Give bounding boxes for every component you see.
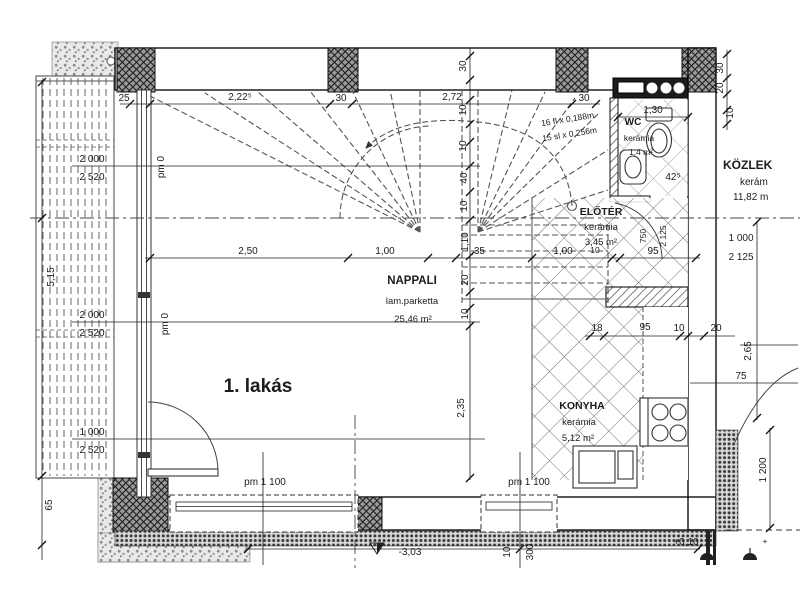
pier — [556, 48, 588, 92]
wcdoor-h: 2 125 — [658, 225, 668, 247]
dim-mid-0: 2,50 — [238, 246, 258, 257]
dim-mid-1: 1,00 — [375, 246, 395, 257]
drain-symbol — [107, 57, 115, 65]
left-facade — [137, 90, 151, 497]
pm1100-a: pm 1 100 — [244, 477, 286, 488]
pm0-a: pm 0 — [156, 155, 167, 178]
eloter-finish: kerámia — [584, 222, 619, 233]
dim-rt-1: 20 — [715, 82, 726, 94]
kozlek-area: 11,82 m — [733, 192, 768, 203]
stove — [640, 398, 688, 446]
dim-mid-4: 10 — [590, 245, 600, 255]
dim-sv-7: 10 — [460, 308, 471, 320]
wcdoor-w: 750 — [638, 229, 648, 243]
dim-rt-0: 30 — [715, 62, 726, 74]
apartment-label: 1. lakás — [224, 376, 293, 397]
pier — [356, 497, 382, 530]
dim-b-1: 300 — [525, 543, 536, 560]
dim-top-4: 30 — [578, 93, 590, 104]
dim-sv-8: 2,35 — [456, 398, 467, 418]
konyha-finish: kerámia — [562, 417, 597, 428]
dim-k-0: 18 — [591, 323, 603, 334]
right-opening-w: 1 000 — [728, 233, 753, 244]
kitchen-sink-unit — [573, 446, 637, 488]
win2-w: 2 000 — [79, 310, 104, 321]
dim-k-1: 95 — [639, 322, 651, 333]
pm1100-b: pm 1 100 — [508, 477, 550, 488]
pm0-b: pm 0 — [160, 312, 171, 335]
dim-ls-0: 5,15 — [46, 267, 57, 287]
dim-top-3: 2,72 — [442, 92, 462, 103]
nappali-finish: lam.parketta — [386, 296, 439, 307]
dim-sv-5: 1,10 — [460, 232, 471, 252]
dim-sv-3: 40 — [459, 172, 470, 184]
window-2 — [481, 495, 557, 532]
nappali-name: NAPPALI — [387, 275, 437, 287]
entry-level: +0,10 — [673, 537, 699, 548]
kitchen-counter — [606, 287, 688, 307]
door1-h: 2 520 — [79, 445, 104, 456]
dim-rs-2: 1 200 — [758, 457, 769, 482]
floorplan-drawing: + 25 2,22⁵ 30 2,72 30 1,30 30 20 10 16 f… — [0, 0, 800, 600]
dim-top-1: 2,22⁵ — [228, 92, 252, 103]
mullion — [138, 292, 150, 298]
dim-wc-corner: 42⁵ — [665, 172, 680, 183]
kozlek-name: KÖZLEK — [723, 157, 773, 172]
win1-h: 2 520 — [79, 172, 104, 183]
window-1 — [170, 495, 358, 532]
dim-mid-3: 1,00 — [553, 246, 573, 257]
konyha-name: KONYHA — [559, 400, 605, 412]
floorplan-canvas: + 25 2,22⁵ 30 2,72 30 1,30 30 20 10 16 f… — [0, 0, 800, 600]
insulation-band — [115, 531, 716, 546]
right-opening-h: 2 125 — [728, 252, 753, 263]
dim-top-0: 25 — [118, 93, 130, 104]
pier — [328, 48, 358, 92]
stair-note-2: 15 sl x 0,256m — [541, 125, 597, 144]
dim-sv-2: 10 — [458, 140, 469, 152]
win1-w: 2 000 — [79, 154, 104, 165]
right-wall — [688, 48, 716, 530]
insulation-band-right — [716, 430, 738, 531]
dim-sv-1: 10 — [458, 104, 469, 116]
wc-area: 1,4 m² — [629, 147, 653, 157]
dim-ls-1: 65 — [44, 499, 55, 511]
nappali-area: 25,46 m² — [394, 314, 432, 325]
dim-sv-4: 10 — [459, 200, 470, 212]
door1-w: 1 000 — [79, 427, 104, 438]
win2-h: 2 520 — [79, 328, 104, 339]
konyha-area: 5,12 m² — [562, 433, 594, 444]
dim-k-3: 20 — [710, 323, 722, 334]
dim-rs-1: 75 — [735, 371, 747, 382]
plus-mark: + — [763, 536, 768, 546]
pier — [117, 48, 155, 92]
dim-top-2: 30 — [335, 93, 347, 104]
kozlek-finish: kerám — [740, 177, 768, 188]
dim-mid-5: 95 — [647, 246, 659, 257]
terrace-level: -3,03 — [399, 547, 422, 558]
wc-finish: kerámia — [624, 133, 655, 143]
dim-b-0: 10 — [502, 546, 513, 558]
dim-sv-0: 30 — [458, 60, 469, 72]
dim-mid-2: ,35 — [471, 246, 485, 257]
dim-k-2: 10 — [673, 323, 685, 334]
dim-rs-0: 2,65 — [743, 341, 754, 361]
dim-wc-width: 1,30 — [643, 105, 663, 116]
mullion — [138, 452, 150, 458]
dim-sv-6: 20 — [460, 274, 471, 286]
vent-shaft — [613, 78, 688, 98]
eloter-name: ELŐTÉR — [580, 205, 623, 218]
dim-rt-2: 10 — [725, 107, 736, 119]
wc-name: WC — [625, 117, 642, 128]
